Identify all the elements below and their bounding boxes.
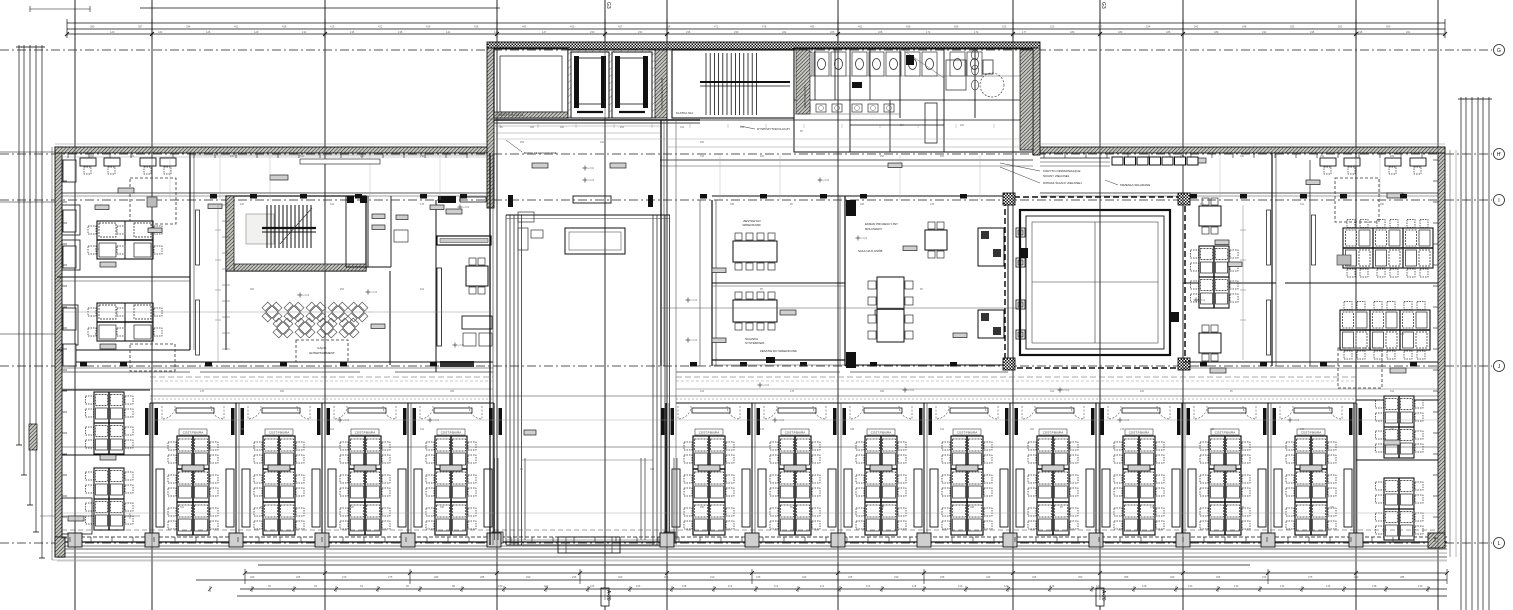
svg-text:345: 345 [1032, 575, 1037, 579]
svg-text:485: 485 [810, 25, 815, 29]
svg-text:394: 394 [186, 25, 191, 29]
svg-text:555: 555 [1290, 25, 1295, 29]
svg-text:108: 108 [682, 584, 687, 588]
svg-text:506: 506 [954, 25, 959, 29]
svg-text:260: 260 [560, 126, 565, 129]
svg-text:150: 150 [590, 30, 595, 34]
svg-text:312: 312 [300, 155, 305, 158]
svg-text:183: 183 [1118, 30, 1123, 34]
svg-text:338: 338 [240, 428, 245, 431]
svg-text:254: 254 [420, 155, 425, 158]
svg-text:134: 134 [1280, 584, 1285, 588]
svg-text:254: 254 [1030, 428, 1035, 431]
svg-text:360: 360 [1170, 575, 1175, 579]
svg-text:130: 130 [1188, 584, 1193, 588]
svg-text:168: 168 [878, 30, 883, 34]
svg-text:178: 178 [790, 390, 795, 393]
svg-text:338: 338 [1210, 428, 1215, 431]
svg-text:H': H' [1497, 152, 1502, 158]
svg-text:WITRAŻ ŚCIANY ZIELONEJ: WITRAŻ ŚCIANY ZIELONEJ [1043, 180, 1082, 185]
svg-text:G3: G3 [1100, 2, 1106, 9]
svg-text:380: 380 [90, 25, 95, 29]
svg-text:260: 260 [280, 390, 285, 393]
svg-text:+3,02: +3,02 [371, 291, 378, 294]
svg-text:178: 178 [1300, 428, 1305, 431]
svg-text:520: 520 [1050, 25, 1055, 29]
svg-text:129: 129 [254, 30, 259, 34]
svg-text:312: 312 [180, 506, 185, 509]
svg-text:178: 178 [1120, 428, 1125, 431]
svg-text:WENTYLACJA B1: WENTYLACJA B1 [803, 85, 807, 108]
svg-text:335: 335 [940, 575, 945, 579]
svg-text:186: 186 [880, 390, 885, 393]
svg-text:312: 312 [1390, 390, 1395, 393]
svg-text:312: 312 [130, 155, 135, 158]
svg-text:548: 548 [1242, 25, 1247, 29]
svg-text:ZESTAW DO WIDEOKONF.: ZESTAW DO WIDEOKONF. [760, 349, 797, 353]
svg-text:ENTERTAINMENT: ENTERTAINMENT [309, 351, 334, 355]
svg-text:178: 178 [420, 203, 425, 206]
svg-text:+3,02: +3,02 [343, 419, 350, 422]
svg-text:L: L [1498, 541, 1501, 547]
svg-text:138: 138 [1372, 584, 1377, 588]
svg-text:365: 365 [1216, 575, 1221, 579]
svg-text:422: 422 [378, 25, 383, 29]
svg-text:PRE 00: PRE 00 [488, 118, 497, 121]
svg-text:153: 153 [638, 30, 643, 34]
svg-text:338: 338 [860, 203, 865, 206]
svg-text:340: 340 [986, 575, 991, 579]
svg-text:180: 180 [1070, 30, 1075, 34]
svg-text:420: 420 [760, 155, 765, 158]
svg-text:+3,02: +3,02 [1123, 419, 1130, 422]
svg-text:492: 492 [858, 25, 863, 29]
svg-text:186: 186 [450, 390, 455, 393]
svg-text:+3,02: +3,02 [588, 179, 595, 182]
svg-text:110: 110 [728, 584, 733, 588]
svg-text:260: 260 [700, 141, 705, 144]
svg-text:COST.P.BIURA: COST.P.BIURA [1301, 431, 1321, 435]
svg-text:+3,02: +3,02 [1293, 419, 1300, 422]
svg-text:192: 192 [1262, 30, 1267, 34]
svg-text:178: 178 [1150, 506, 1155, 509]
svg-text:300: 300 [618, 575, 623, 579]
svg-text:102: 102 [544, 584, 549, 588]
svg-text:350: 350 [1078, 575, 1083, 579]
svg-text:436: 436 [474, 25, 479, 29]
svg-text:136: 136 [1326, 584, 1331, 588]
svg-text:A-20: A-20 [605, 590, 611, 601]
svg-text:290: 290 [526, 575, 531, 579]
svg-text:499: 499 [906, 25, 911, 29]
svg-text:254: 254 [880, 155, 885, 158]
svg-text:380: 380 [1354, 575, 1359, 579]
svg-text:I: I [1498, 198, 1499, 204]
svg-text:260: 260 [250, 288, 255, 291]
svg-text:478: 478 [762, 25, 767, 29]
svg-text:114: 114 [820, 584, 825, 588]
svg-text:+3,02: +3,02 [908, 389, 915, 392]
svg-text:420: 420 [230, 155, 235, 158]
svg-text:443: 443 [522, 25, 527, 29]
svg-text:265: 265 [296, 575, 301, 579]
svg-text:186: 186 [1390, 155, 1395, 158]
svg-text:320: 320 [802, 575, 807, 579]
svg-text:312: 312 [1050, 390, 1055, 393]
svg-text:420: 420 [240, 203, 245, 206]
svg-text:260: 260 [940, 155, 945, 158]
svg-text:DYSPOZYTOR KLUCZY: DYSPOZYTOR KLUCZY [757, 127, 790, 131]
svg-text:G3: G3 [605, 2, 611, 9]
svg-text:375: 375 [1308, 575, 1313, 579]
svg-text:270: 270 [342, 575, 347, 579]
svg-text:123: 123 [158, 30, 163, 34]
svg-text:338: 338 [880, 506, 885, 509]
svg-text:+3,02: +3,02 [763, 384, 770, 387]
svg-text:COST.P.BIURA: COST.P.BIURA [1129, 431, 1149, 435]
svg-text:527: 527 [1098, 25, 1103, 29]
svg-text:128: 128 [1142, 584, 1147, 588]
svg-text:116: 116 [866, 584, 871, 588]
svg-text:260: 260 [1380, 203, 1385, 206]
svg-text:A-20: A-20 [1100, 590, 1106, 601]
svg-text:355: 355 [1124, 575, 1129, 579]
svg-text:COST.P.BIURA: COST.P.BIURA [183, 431, 203, 435]
svg-text:100: 100 [498, 584, 503, 588]
svg-text:408: 408 [282, 25, 287, 29]
svg-text:147: 147 [542, 30, 547, 34]
svg-text:+3,02: +3,02 [458, 344, 465, 347]
svg-text:312: 312 [700, 155, 705, 158]
svg-text:126: 126 [206, 30, 211, 34]
svg-text:138: 138 [398, 30, 403, 34]
svg-text:310: 310 [710, 575, 715, 579]
svg-text:312: 312 [600, 141, 605, 144]
svg-text:370: 370 [1262, 575, 1267, 579]
svg-text:141: 141 [446, 30, 451, 34]
svg-text:144: 144 [494, 30, 499, 34]
svg-text:104: 104 [590, 584, 595, 588]
svg-text:ROLOWANY: ROLOWANY [865, 227, 882, 231]
svg-text:315: 315 [756, 575, 761, 579]
svg-text:COST.P.BIURA: COST.P.BIURA [957, 431, 977, 435]
svg-text:118: 118 [912, 584, 917, 588]
svg-text:305: 305 [664, 575, 669, 579]
svg-text:254: 254 [620, 126, 625, 129]
svg-text:312: 312 [1300, 203, 1305, 206]
svg-text:COST.P.BIURA: COST.P.BIURA [1043, 431, 1063, 435]
svg-text:275: 275 [388, 575, 393, 579]
svg-text:429: 429 [426, 25, 431, 29]
svg-text:534: 534 [1146, 25, 1151, 29]
svg-text:177: 177 [1022, 30, 1027, 34]
svg-text:260: 260 [700, 506, 705, 509]
svg-text:178: 178 [760, 428, 765, 431]
svg-text:COST.P.BIURA: COST.P.BIURA [269, 431, 289, 435]
svg-text:198: 198 [1358, 30, 1363, 34]
svg-text:112: 112 [774, 584, 779, 588]
svg-text:COST.P.BIURA: COST.P.BIURA [441, 431, 461, 435]
svg-text:+3,02: +3,02 [823, 179, 830, 182]
svg-text:415: 415 [330, 25, 335, 29]
svg-text:ŚCIANY ZIELONEJ: ŚCIANY ZIELONEJ [1043, 173, 1070, 178]
svg-text:KRZESŁA SKŁADANE: KRZESŁA SKŁADANE [1120, 183, 1150, 187]
svg-text:401: 401 [234, 25, 239, 29]
svg-text:COST.P.BIURA: COST.P.BIURA [871, 431, 891, 435]
svg-text:WIDEOKONF.: WIDEOKONF. [742, 223, 761, 227]
svg-text:330: 330 [894, 575, 899, 579]
svg-text:471: 471 [714, 25, 719, 29]
svg-text:420: 420 [960, 124, 965, 127]
svg-text:159: 159 [734, 30, 739, 34]
svg-text:165: 165 [830, 30, 835, 34]
svg-text:260: 260 [90, 155, 95, 158]
svg-text:312: 312 [700, 390, 705, 393]
svg-text:312: 312 [940, 428, 945, 431]
svg-text:338: 338 [970, 506, 975, 509]
svg-text:280: 280 [434, 575, 439, 579]
svg-text:254: 254 [340, 288, 345, 291]
svg-text:KLATKA S11: KLATKA S11 [676, 111, 693, 115]
svg-text:312: 312 [420, 288, 425, 291]
svg-text:562: 562 [1338, 25, 1343, 29]
svg-text:513: 513 [1002, 25, 1007, 29]
svg-text:338: 338 [730, 203, 735, 206]
svg-text:SALA NA 8 OSÓB: SALA NA 8 OSÓB [858, 248, 882, 253]
svg-text:201: 201 [1406, 30, 1411, 34]
svg-text:EKRAN PROJEKCYJNY: EKRAN PROJEKCYJNY [865, 222, 898, 226]
svg-text:420: 420 [1240, 155, 1245, 158]
svg-text:156: 156 [686, 30, 691, 34]
svg-text:+3,02: +3,02 [1199, 299, 1206, 302]
svg-text:260: 260 [1390, 428, 1395, 431]
svg-text:420: 420 [1140, 390, 1145, 393]
svg-text:186: 186 [1330, 506, 1335, 509]
svg-text:+3,02: +3,02 [778, 419, 785, 422]
svg-text:186: 186 [1166, 30, 1171, 34]
svg-text:295: 295 [572, 575, 577, 579]
svg-text:162: 162 [782, 30, 787, 34]
svg-text:120: 120 [110, 30, 115, 34]
svg-text:171: 171 [926, 30, 931, 34]
svg-text:325: 325 [848, 575, 853, 579]
svg-text:COST.P.BIURA: COST.P.BIURA [699, 431, 719, 435]
svg-text:260: 260 [360, 155, 365, 158]
svg-text:420: 420 [350, 506, 355, 509]
svg-text:420: 420 [1240, 506, 1245, 509]
svg-text:312: 312 [1200, 203, 1205, 206]
svg-text:312: 312 [420, 428, 425, 431]
svg-text:312: 312 [740, 126, 745, 129]
svg-text:450: 450 [570, 25, 575, 29]
svg-text:120: 120 [958, 584, 963, 588]
svg-text:541: 541 [1194, 25, 1199, 29]
svg-text:135: 135 [350, 30, 355, 34]
svg-text:NAPROWADZENIE KLATKI: NAPROWADZENIE KLATKI [660, 77, 664, 110]
svg-text:338: 338 [1400, 333, 1405, 336]
svg-text:569: 569 [1386, 25, 1391, 29]
svg-text:178: 178 [930, 203, 935, 206]
svg-text:312: 312 [680, 126, 685, 129]
svg-text:BUDKI TELEFONICZNE: BUDKI TELEFONICZNE [524, 151, 557, 155]
svg-text:186: 186 [95, 248, 100, 251]
svg-text:178: 178 [200, 390, 205, 393]
svg-text:387: 387 [138, 25, 143, 29]
svg-text:132: 132 [302, 30, 307, 34]
svg-text:G: G [1497, 48, 1501, 54]
svg-text:132: 132 [1234, 584, 1239, 588]
svg-text:312: 312 [330, 203, 335, 206]
svg-text:+3,02: +3,02 [1063, 389, 1070, 392]
svg-text:254: 254 [260, 506, 265, 509]
svg-text:260: 260 [250, 575, 255, 579]
svg-text:312: 312 [330, 428, 335, 431]
svg-text:WENTYLACJA 01: WENTYLACJA 01 [498, 113, 524, 117]
svg-text:140: 140 [1418, 584, 1423, 588]
svg-text:457: 457 [618, 25, 623, 29]
svg-text:+3,02: +3,02 [691, 339, 698, 342]
svg-text:124: 124 [1050, 584, 1055, 588]
svg-text:186: 186 [1400, 248, 1405, 251]
svg-text:+3,02: +3,02 [303, 294, 310, 297]
svg-text:189: 189 [1214, 30, 1219, 34]
svg-text:COST.P.BIURA: COST.P.BIURA [1215, 431, 1235, 435]
svg-text:+3,02: +3,02 [588, 167, 595, 170]
svg-text:254: 254 [520, 141, 525, 144]
svg-text:COST.P.BIURA: COST.P.BIURA [355, 431, 375, 435]
svg-text:+3,02: +3,02 [463, 206, 470, 209]
svg-text:+3,02: +3,02 [861, 237, 868, 240]
svg-text:COST.P.BIURA: COST.P.BIURA [785, 431, 805, 435]
svg-text:195: 195 [1310, 30, 1315, 34]
svg-text:SYSTEMOWA: SYSTEMOWA [745, 341, 764, 345]
svg-text:385: 385 [1400, 575, 1405, 579]
svg-text:338: 338 [850, 428, 855, 431]
svg-text:KORYTO ODWADNIAJĄCE: KORYTO ODWADNIAJĄCE [1043, 169, 1080, 173]
svg-text:+3,02: +3,02 [691, 299, 698, 302]
svg-text:254: 254 [1320, 155, 1325, 158]
svg-text:285: 285 [480, 575, 485, 579]
svg-text:174: 174 [974, 30, 979, 34]
svg-text:254: 254 [900, 124, 905, 127]
svg-text:+3,02: +3,02 [433, 419, 440, 422]
svg-text:338: 338 [440, 506, 445, 509]
svg-text:338: 338 [650, 468, 655, 471]
svg-text:186: 186 [530, 126, 535, 129]
svg-text:464: 464 [666, 25, 671, 29]
svg-text:106: 106 [636, 584, 641, 588]
